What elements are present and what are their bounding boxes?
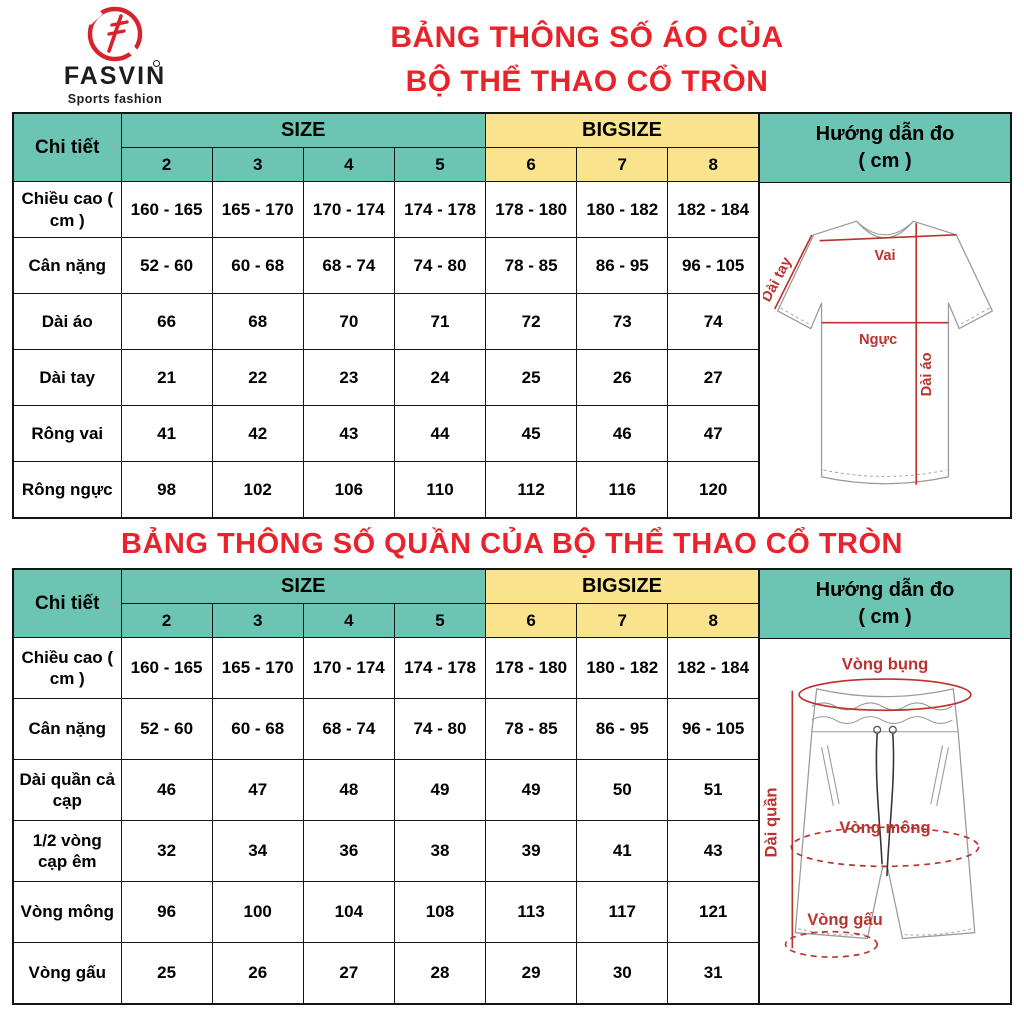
table-cell: 102 [212, 462, 303, 519]
guide-header-line1: Hướng dẫn đo [760, 121, 1010, 148]
pants-spec-table: Chi tiết SIZE BIGSIZE 2 3 4 5 6 7 8 Chiề… [12, 568, 760, 1005]
table-cell: 180 - 182 [577, 182, 668, 238]
size-col-6: 6 [486, 148, 577, 182]
table-cell: 165 - 170 [212, 182, 303, 238]
table-row: Dài quần cả cạp46474849495051 [13, 760, 759, 821]
table-cell: 100 [212, 882, 303, 943]
shirt-title-line1: BẢNG THÔNG SỐ ÁO CỦA [390, 21, 783, 54]
table-row: Rông ngực98102106110112116120 [13, 462, 759, 519]
ring-mark-icon [153, 60, 160, 67]
tshirt-diagram: Vai Ngực Dài áo Dài tay [760, 183, 1010, 517]
table-cell: 170 - 174 [303, 182, 394, 238]
table-cell: 182 - 184 [668, 182, 759, 238]
size-col-2: 2 [121, 604, 212, 638]
shorts-diagram: Vòng bụng Vòng mông Vòng gấu Dài quần [760, 639, 1010, 1003]
table-cell: 41 [121, 406, 212, 462]
shirt-detail-header: Chi tiết [13, 113, 121, 182]
table-cell: 165 - 170 [212, 638, 303, 699]
table-cell: 113 [486, 882, 577, 943]
table-cell: 108 [394, 882, 485, 943]
table-cell: 60 - 68 [212, 699, 303, 760]
size-col-6: 6 [486, 604, 577, 638]
table-cell: 51 [668, 760, 759, 821]
table-cell: 34 [212, 821, 303, 882]
row-label: Vòng gấu [13, 943, 121, 1005]
table-cell: 46 [577, 406, 668, 462]
table-cell: 52 - 60 [121, 238, 212, 294]
table-cell: 28 [394, 943, 485, 1005]
table-cell: 66 [121, 294, 212, 350]
table-cell: 48 [303, 760, 394, 821]
shirt-title-line2: BỘ THỂ THAO CỔ TRÒN [406, 65, 769, 98]
table-cell: 68 - 74 [303, 238, 394, 294]
table-cell: 30 [577, 943, 668, 1005]
table-cell: 50 [577, 760, 668, 821]
row-label: Cân nặng [13, 238, 121, 294]
table-row: Vòng gấu25262728293031 [13, 943, 759, 1005]
page-header: FASVIN Sports fashion BẢNG THÔNG SỐ ÁO C… [0, 0, 1024, 112]
row-label: Chiều cao ( cm ) [13, 638, 121, 699]
size-col-5: 5 [394, 604, 485, 638]
table-cell: 44 [394, 406, 485, 462]
table-cell: 47 [668, 406, 759, 462]
brand-tagline: Sports fashion [50, 92, 180, 106]
brand-name: FASVIN [64, 64, 166, 89]
label-vong-mong: Vòng mông [839, 818, 930, 837]
table-cell: 43 [668, 821, 759, 882]
size-col-7: 7 [577, 148, 668, 182]
table-cell: 49 [394, 760, 485, 821]
table-row: Rông vai41424344454647 [13, 406, 759, 462]
table-cell: 21 [121, 350, 212, 406]
table-cell: 178 - 180 [486, 638, 577, 699]
row-label: Dài áo [13, 294, 121, 350]
size-col-2: 2 [121, 148, 212, 182]
table-cell: 174 - 178 [394, 182, 485, 238]
table-cell: 70 [303, 294, 394, 350]
shirt-guide-header: Hướng dẫn đo ( cm ) [760, 114, 1010, 183]
guide-header-line2: ( cm ) [760, 148, 1010, 175]
table-cell: 41 [577, 821, 668, 882]
table-row: Chiều cao ( cm )160 - 165165 - 170170 - … [13, 182, 759, 238]
shorts-diagram-icon: Vòng bụng Vòng mông Vòng gấu Dài quần [763, 642, 1007, 1000]
table-cell: 110 [394, 462, 485, 519]
row-label: Chiều cao ( cm ) [13, 182, 121, 238]
size-col-3: 3 [212, 604, 303, 638]
table-cell: 174 - 178 [394, 638, 485, 699]
label-dai-ao: Dài áo [919, 352, 935, 396]
table-cell: 98 [121, 462, 212, 519]
pants-table-title: BẢNG THÔNG SỐ QUẦN CỦA BỘ THỂ THAO CỔ TR… [12, 528, 1012, 561]
row-label: Cân nặng [13, 699, 121, 760]
table-cell: 74 [668, 294, 759, 350]
pants-bigsize-header: BIGSIZE [486, 569, 759, 604]
table-cell: 47 [212, 760, 303, 821]
table-row: Dài áo66687071727374 [13, 294, 759, 350]
size-col-7: 7 [577, 604, 668, 638]
table-row: Vòng mông96100104108113117121 [13, 882, 759, 943]
label-vong-gau: Vòng gấu [807, 910, 883, 929]
size-col-3: 3 [212, 148, 303, 182]
table-row: Dài tay21222324252627 [13, 350, 759, 406]
table-cell: 86 - 95 [577, 699, 668, 760]
pants-table-section: Chi tiết SIZE BIGSIZE 2 3 4 5 6 7 8 Chiề… [12, 568, 1012, 1005]
table-cell: 52 - 60 [121, 699, 212, 760]
table-cell: 26 [577, 350, 668, 406]
table-cell: 96 - 105 [668, 699, 759, 760]
table-cell: 46 [121, 760, 212, 821]
table-cell: 182 - 184 [668, 638, 759, 699]
table-cell: 36 [303, 821, 394, 882]
table-cell: 112 [486, 462, 577, 519]
row-label: Rông vai [13, 406, 121, 462]
brand-logo: FASVIN Sports fashion [50, 4, 180, 106]
table-cell: 72 [486, 294, 577, 350]
table-cell: 78 - 85 [486, 699, 577, 760]
table-cell: 121 [668, 882, 759, 943]
pants-measure-guide-column: Hướng dẫn đo ( cm ) [760, 568, 1012, 1005]
table-row: Chiều cao ( cm )160 - 165165 - 170170 - … [13, 638, 759, 699]
table-cell: 31 [668, 943, 759, 1005]
brand-name-text: FASVIN [64, 62, 166, 90]
table-cell: 23 [303, 350, 394, 406]
table-cell: 27 [303, 943, 394, 1005]
table-cell: 39 [486, 821, 577, 882]
table-cell: 120 [668, 462, 759, 519]
pants-detail-header: Chi tiết [13, 569, 121, 638]
table-cell: 42 [212, 406, 303, 462]
table-cell: 38 [394, 821, 485, 882]
tshirt-diagram-icon: Vai Ngực Dài áo Dài tay [763, 184, 1007, 516]
size-col-8: 8 [668, 604, 759, 638]
table-cell: 43 [303, 406, 394, 462]
row-label: Vòng mông [13, 882, 121, 943]
guide-header-line1: Hướng dẫn đo [760, 577, 1010, 604]
size-col-4: 4 [303, 604, 394, 638]
table-cell: 180 - 182 [577, 638, 668, 699]
table-cell: 160 - 165 [121, 638, 212, 699]
size-chart-page: FASVIN Sports fashion BẢNG THÔNG SỐ ÁO C… [0, 0, 1024, 1024]
table-cell: 25 [121, 943, 212, 1005]
row-label: Dài tay [13, 350, 121, 406]
table-cell: 25 [486, 350, 577, 406]
pants-size-header: SIZE [121, 569, 486, 604]
label-vong-bung: Vòng bụng [842, 654, 929, 673]
shirt-measure-guide-column: Hướng dẫn đo ( cm ) Vai Ngực [760, 112, 1012, 519]
row-label: Rông ngực [13, 462, 121, 519]
table-cell: 29 [486, 943, 577, 1005]
table-row: Cân nặng52 - 6060 - 6868 - 7474 - 8078 -… [13, 699, 759, 760]
shirt-size-header: SIZE [121, 113, 486, 148]
table-cell: 60 - 68 [212, 238, 303, 294]
pants-guide-header: Hướng dẫn đo ( cm ) [760, 570, 1010, 639]
table-cell: 74 - 80 [394, 699, 485, 760]
table-cell: 22 [212, 350, 303, 406]
table-cell: 170 - 174 [303, 638, 394, 699]
table-row: Cân nặng52 - 6060 - 6868 - 7474 - 8078 -… [13, 238, 759, 294]
guide-header-line2: ( cm ) [760, 604, 1010, 631]
table-cell: 160 - 165 [121, 182, 212, 238]
table-cell: 96 - 105 [668, 238, 759, 294]
size-col-8: 8 [668, 148, 759, 182]
table-cell: 71 [394, 294, 485, 350]
table-cell: 68 [212, 294, 303, 350]
table-cell: 86 - 95 [577, 238, 668, 294]
table-cell: 96 [121, 882, 212, 943]
row-label: Dài quần cả cạp [13, 760, 121, 821]
shirt-bigsize-header: BIGSIZE [486, 113, 759, 148]
shirt-spec-table: Chi tiết SIZE BIGSIZE 2 3 4 5 6 7 8 Chiề… [12, 112, 760, 519]
size-col-4: 4 [303, 148, 394, 182]
row-label: 1/2 vòng cạp êm [13, 821, 121, 882]
label-nguc: Ngực [859, 332, 897, 348]
table-cell: 45 [486, 406, 577, 462]
table-cell: 49 [486, 760, 577, 821]
table-cell: 78 - 85 [486, 238, 577, 294]
fasvin-logo-icon [85, 4, 145, 64]
table-cell: 73 [577, 294, 668, 350]
table-cell: 104 [303, 882, 394, 943]
table-cell: 32 [121, 821, 212, 882]
table-cell: 27 [668, 350, 759, 406]
table-cell: 117 [577, 882, 668, 943]
size-col-5: 5 [394, 148, 485, 182]
shirt-table-title: BẢNG THÔNG SỐ ÁO CỦA BỘ THỂ THAO CỔ TRÒN [190, 16, 984, 103]
table-cell: 24 [394, 350, 485, 406]
table-cell: 68 - 74 [303, 699, 394, 760]
table-cell: 26 [212, 943, 303, 1005]
label-vai: Vai [874, 248, 895, 264]
table-row: 1/2 vòng cạp êm32343638394143 [13, 821, 759, 882]
label-dai-quan: Dài quần [763, 787, 781, 857]
table-cell: 178 - 180 [486, 182, 577, 238]
table-cell: 106 [303, 462, 394, 519]
table-cell: 116 [577, 462, 668, 519]
table-cell: 74 - 80 [394, 238, 485, 294]
shirt-table-section: Chi tiết SIZE BIGSIZE 2 3 4 5 6 7 8 Chiề… [12, 112, 1012, 519]
